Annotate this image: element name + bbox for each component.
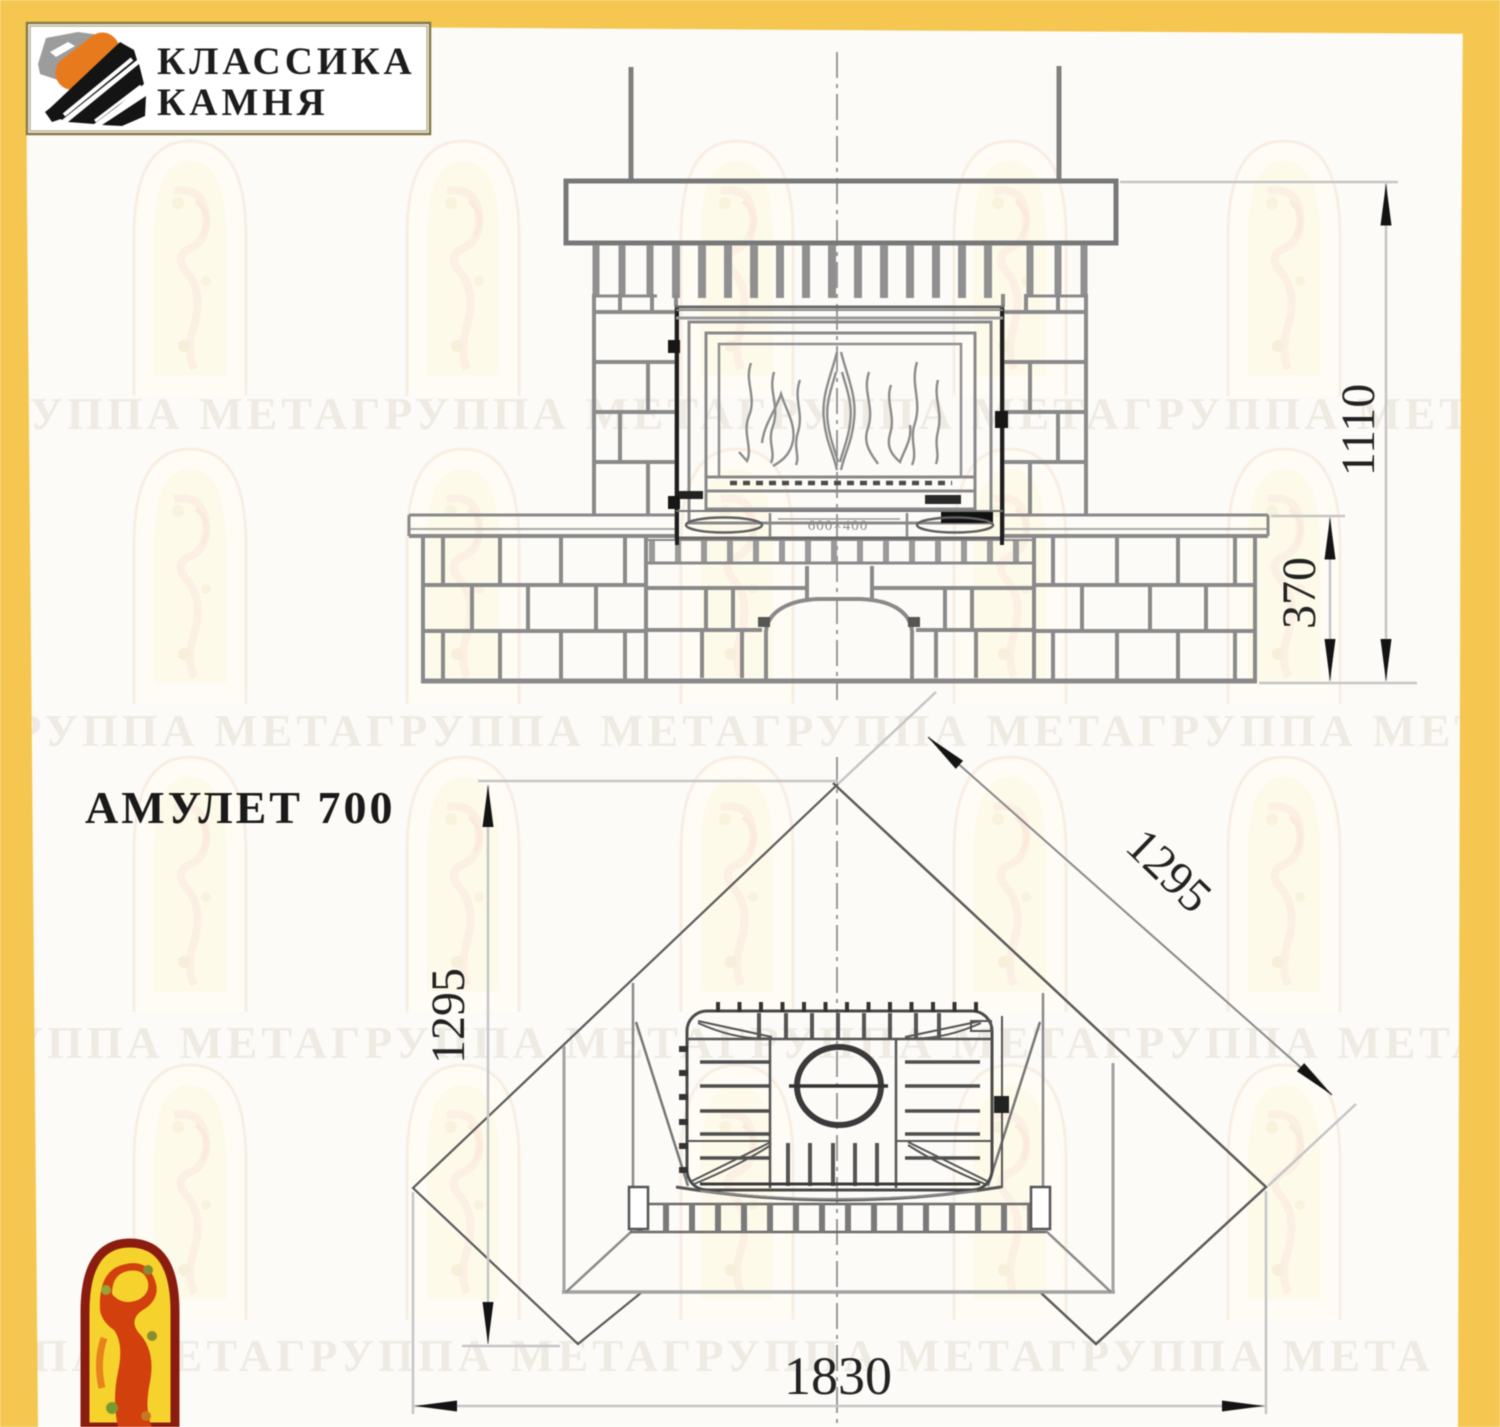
- svg-text:АМУЛЕТ 700: АМУЛЕТ 700: [85, 782, 395, 833]
- svg-text:600×400: 600×400: [808, 518, 868, 534]
- svg-text:КЛАССИКА: КЛАССИКА: [157, 40, 416, 83]
- svg-text:ГРУППА МЕТАГРУППА МЕТАГРУППА М: ГРУППА МЕТАГРУППА МЕТАГРУППА МЕТАГРУППА …: [0, 705, 1500, 756]
- svg-text:КАМНЯ: КАМНЯ: [157, 81, 329, 124]
- svg-text:1110: 1110: [1332, 384, 1385, 476]
- svg-text:370: 370: [1273, 557, 1326, 629]
- svg-text:1295: 1295: [422, 968, 475, 1064]
- svg-text:1830: 1830: [784, 1346, 892, 1406]
- svg-text:ГРУППА МЕТАГРУППА МЕТАГРУППА М: ГРУППА МЕТАГРУППА МЕТАГРУППА МЕТАГРУППА …: [0, 1330, 1434, 1381]
